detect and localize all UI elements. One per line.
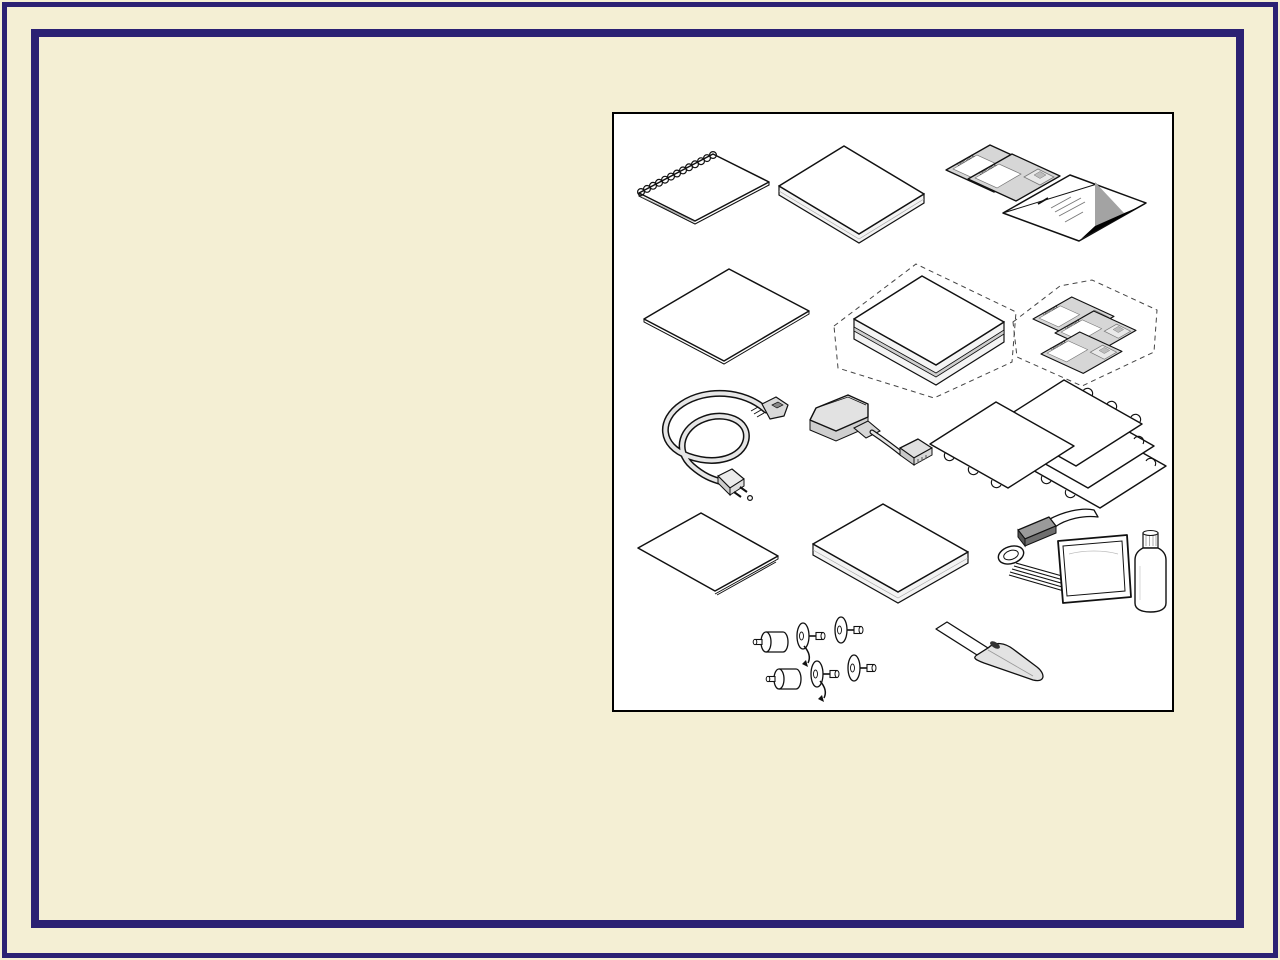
plain-sheet-illustration: [644, 269, 809, 364]
wall-plug: [718, 469, 752, 500]
small-connector: [900, 439, 932, 465]
folded-sheet-illustration: [638, 513, 778, 595]
roller-knobs-illustration: [753, 617, 876, 702]
spiral-bound-manual-illustration: [638, 152, 769, 224]
boxed-media-illustration: [813, 504, 968, 603]
manual-page: { "page": { "background_color": "#f4efd4…: [0, 0, 1280, 960]
cleaning-fluid-bottle: [1135, 531, 1166, 613]
power-cord-illustration: [665, 393, 788, 500]
wipe-packet: [1058, 535, 1131, 603]
cleaning-kit-illustration: [996, 509, 1166, 612]
optional-floppies-illustration: [1013, 280, 1157, 386]
opener-knife-illustration: [936, 622, 1043, 681]
label-sheets-illustration: [930, 380, 1166, 508]
optional-box-illustration: [834, 264, 1016, 398]
boxed-documentation-illustration: [779, 146, 924, 243]
adapter-cable-illustration: [810, 395, 932, 465]
box-contents-illustration: Lexmark: [614, 114, 1172, 710]
box-contents-panel: Lexmark: [612, 112, 1174, 712]
